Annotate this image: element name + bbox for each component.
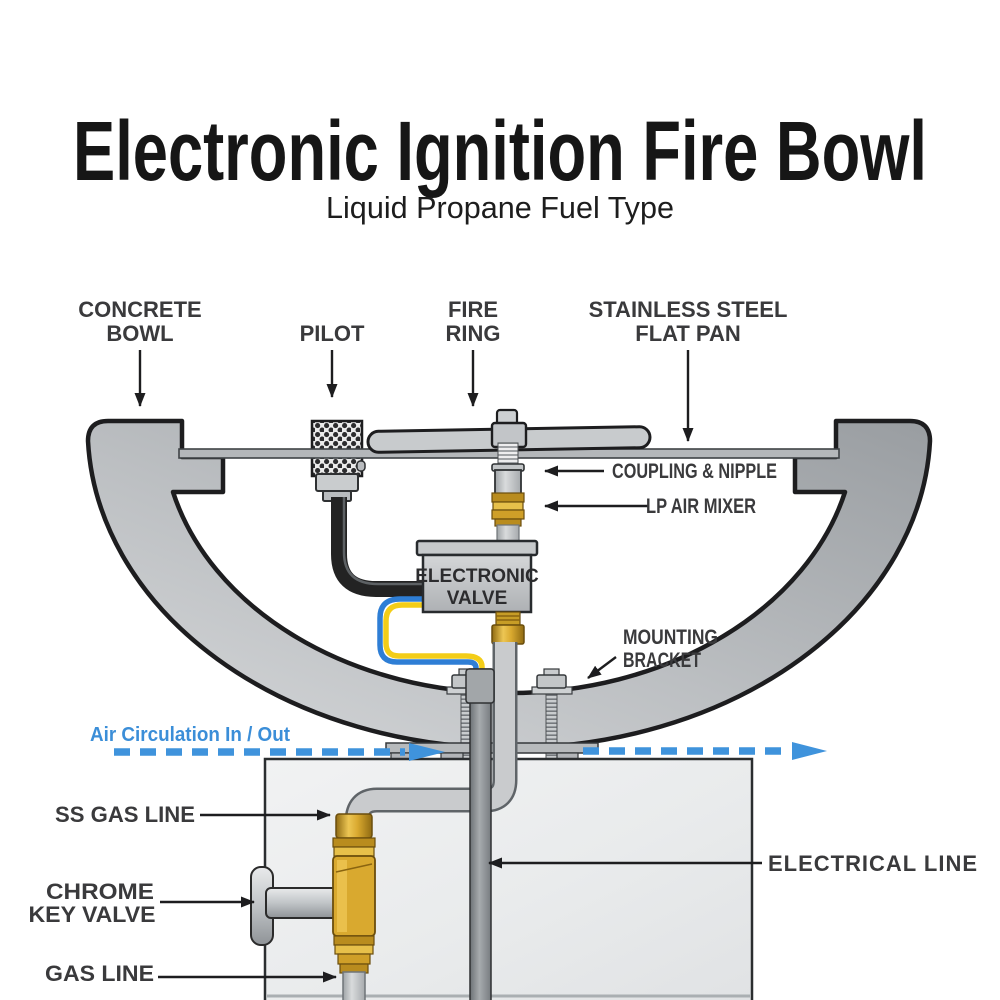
valve-outlet-brass [492,612,524,644]
lp-air-mixer-shape [492,493,524,526]
wire-yellow [386,605,482,676]
label-coupling: COUPLING & NIPPLE [612,460,777,483]
electronic-valve-label-line1: ELECTRONIC [415,566,539,587]
brass-valve-body [333,814,375,973]
pilot-knob [357,461,365,471]
page-subtitle: Liquid Propane Fuel Type [326,190,674,225]
label-mounting-bracket-line1: MOUNTING [623,626,718,649]
label-fire-ring-line1: FIRE [448,297,498,322]
pilot-assembly [312,421,365,501]
page-title: Electronic Ignition Fire Bowl [73,104,927,198]
label-air-circulation: Air Circulation In / Out [90,724,290,746]
label-concrete-bowl-line1: CONCRETE [78,297,201,322]
electrical-line-pipe [470,669,491,1000]
label-chrome-key-valve-line2: KEY VALVE [29,902,156,927]
conduit-sleeve [466,669,494,703]
fire-bowl-diagram-page: ELECTRONIC VALVE [0,0,1000,1000]
label-concrete-bowl-line2: BOWL [106,321,173,346]
electronic-valve: ELECTRONIC VALVE [415,541,539,612]
label-gas-line: GAS LINE [45,961,154,986]
label-ss-gas-line: SS GAS LINE [55,802,195,827]
label-flat-pan-line1: STAINLESS STEEL [589,297,788,322]
diagram-canvas: ELECTRONIC VALVE [0,0,1000,1000]
label-mounting-bracket-line2: BRACKET [623,649,701,672]
label-electrical-line: ELECTRICAL LINE [768,851,977,876]
label-chrome-key-valve-line1: CHROME [46,879,154,904]
label-fire-ring-line2: RING [446,321,501,346]
label-pilot: PILOT [300,321,365,346]
coupling-shape [492,464,524,494]
label-lp-air-mixer: LP AIR MIXER [646,495,756,518]
label-flat-pan-line2: FLAT PAN [635,321,741,346]
electronic-valve-label-line2: VALVE [447,588,508,609]
gas-line-pipe [343,972,365,1000]
